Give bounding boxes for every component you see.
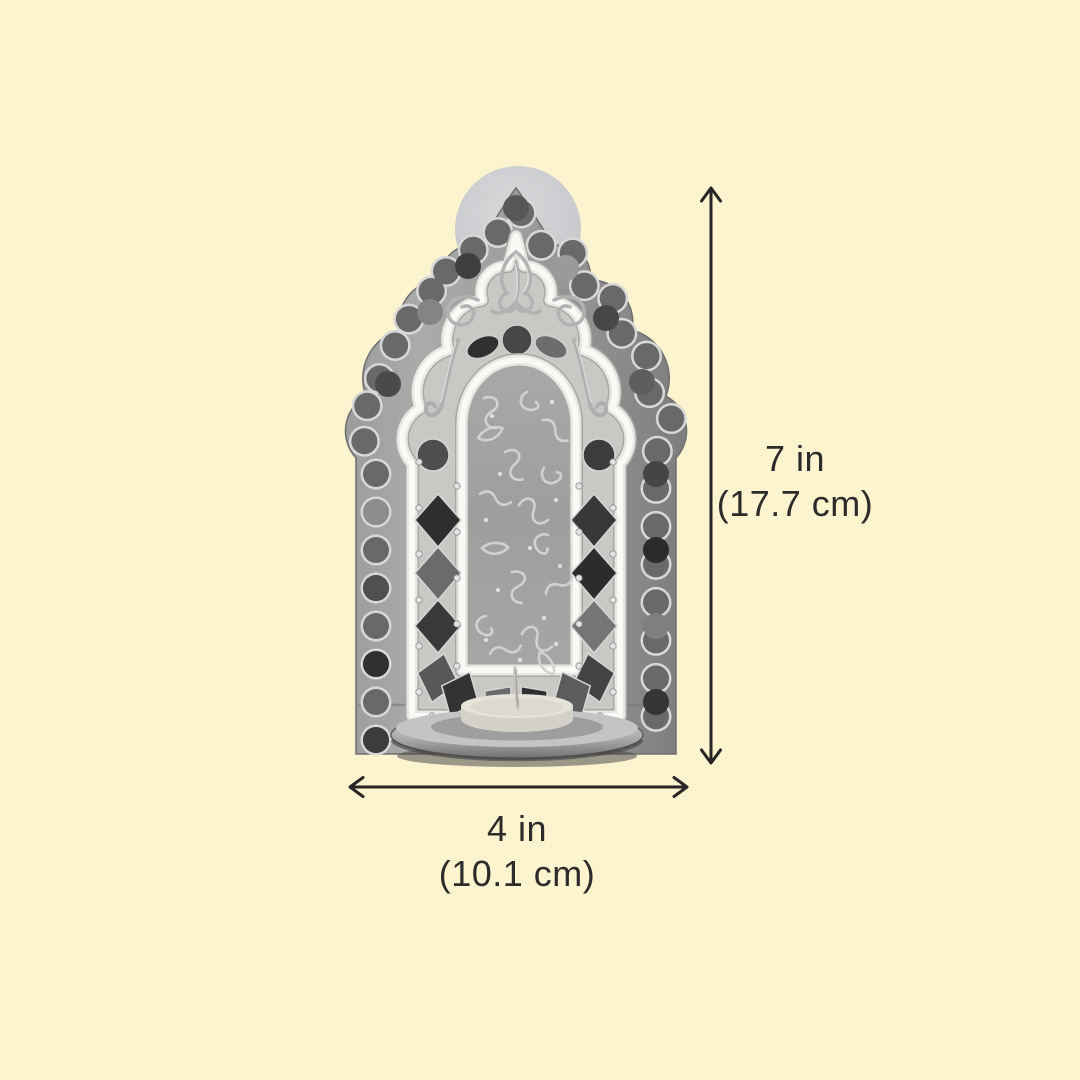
product-dimension-image: 7 in (17.7 cm) 4 in (10.1 cm): [0, 0, 1080, 1080]
width-dimension-arrow: [350, 778, 687, 797]
arched-window: [462, 360, 576, 677]
width-dimension-label: 4 in (10.1 cm): [397, 806, 637, 896]
width-value-metric: (10.1 cm): [397, 851, 637, 896]
height-value-inches: 7 in: [675, 436, 915, 481]
product-illustration: [0, 0, 1080, 1080]
width-value-inches: 4 in: [397, 806, 637, 851]
height-value-metric: (17.7 cm): [675, 481, 915, 526]
height-dimension-label: 7 in (17.7 cm): [675, 436, 915, 526]
